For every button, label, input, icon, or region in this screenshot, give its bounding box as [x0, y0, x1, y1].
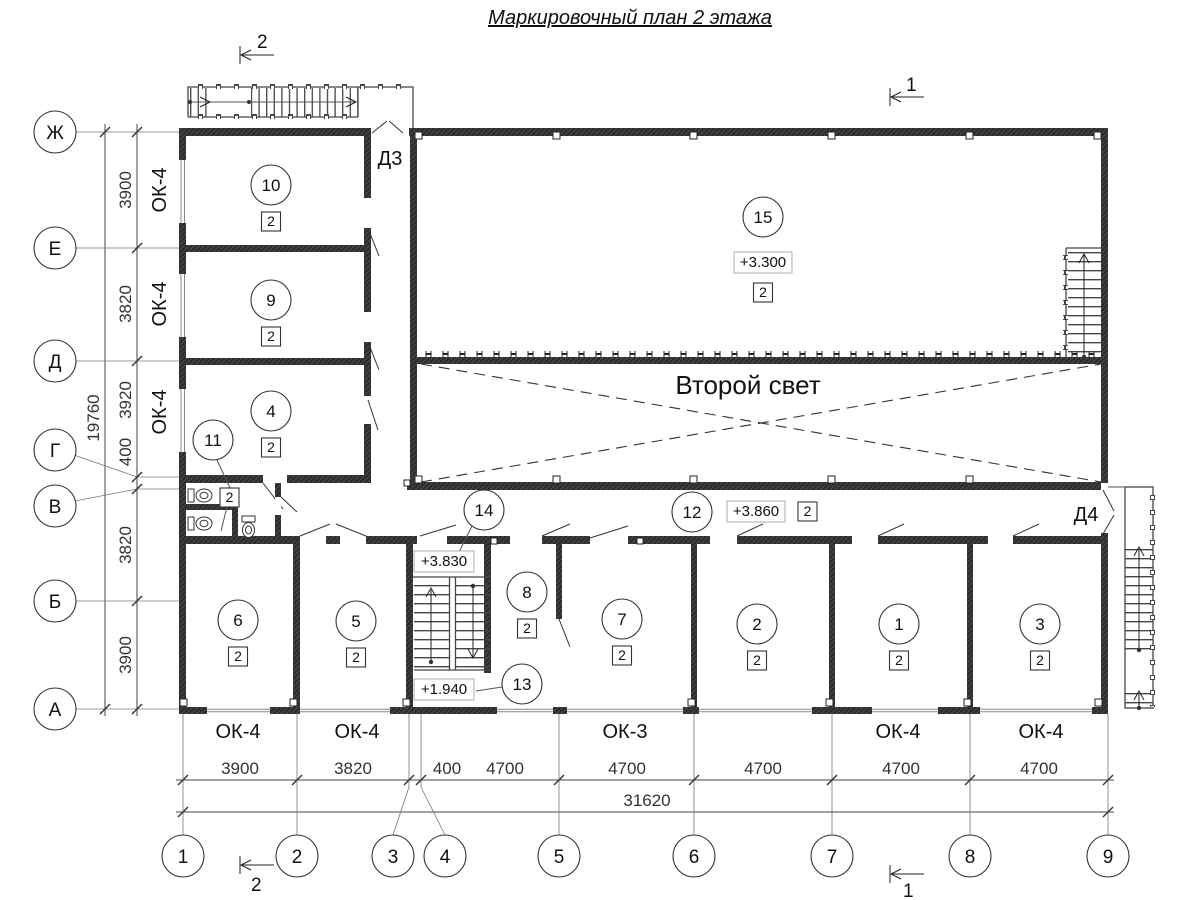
- dim-left-5: 3820: [116, 526, 135, 564]
- room-label-5: 5 2: [336, 601, 376, 667]
- page-title: Маркировочный план 2 этажа: [488, 7, 772, 29]
- window-bottom-room8: [497, 707, 553, 714]
- room-label-12: 12 +3.860 2: [672, 492, 817, 532]
- axis-b: Б: [49, 592, 61, 613]
- window-bottom-room2: [699, 707, 812, 714]
- second-light-label: Второй свет: [675, 370, 820, 400]
- drawing-page: Маркировочный план 2 этажа: [0, 0, 1200, 900]
- stair-top-external: [188, 84, 413, 128]
- window-mark-ok4-1: ОК-4: [216, 721, 261, 743]
- axis-3: 3: [388, 847, 399, 868]
- window-mark-ok4-3: ОК-4: [876, 721, 921, 743]
- svg-text:8: 8: [522, 583, 531, 602]
- toilet-icon: [188, 489, 212, 502]
- axis-5: 5: [554, 847, 565, 868]
- axis-e: Е: [49, 239, 62, 260]
- axes-bottom: 1 2 3 4 5 6 7 8 9: [162, 835, 1129, 877]
- svg-text:2: 2: [618, 647, 626, 663]
- dim-bottom-6: 4700: [744, 759, 782, 778]
- svg-text:2: 2: [226, 489, 234, 505]
- window-left-2: [179, 274, 186, 337]
- svg-text:2: 2: [804, 503, 812, 519]
- dim-bottom-3: 400: [433, 759, 461, 778]
- axis-7: 7: [827, 847, 838, 868]
- svg-text:12: 12: [683, 503, 702, 522]
- axis-6: 6: [689, 847, 700, 868]
- dim-left-4: 400: [116, 438, 135, 466]
- axis-v: В: [49, 497, 62, 518]
- window-mark-ok3: ОК-3: [603, 721, 648, 743]
- stair-elevation-upper: +3.830: [414, 551, 474, 572]
- svg-text:2: 2: [251, 875, 262, 896]
- stair-main: [413, 577, 491, 670]
- window-mark-ok4-2: ОК-4: [335, 721, 380, 743]
- svg-text:1: 1: [906, 75, 917, 96]
- section-mark-2-bottom: 2: [240, 856, 274, 896]
- section-mark-2-top: 2: [240, 32, 274, 64]
- room-label-8: 8 2: [507, 572, 547, 638]
- elevation-stair-lower: +1.940: [421, 681, 467, 698]
- window-mark-ok4-4: ОК-4: [1019, 721, 1064, 743]
- axis-zh: Ж: [46, 123, 64, 144]
- stairs: [188, 84, 1155, 710]
- svg-text:7: 7: [617, 610, 626, 629]
- toilet-icon: [242, 516, 255, 538]
- svg-text:2: 2: [267, 328, 275, 344]
- dim-bottom-7: 4700: [882, 759, 920, 778]
- svg-text:2: 2: [267, 213, 275, 229]
- svg-text:2: 2: [895, 652, 903, 668]
- elevation-hall: +3.300: [740, 254, 786, 271]
- dim-bottom-4: 4700: [486, 759, 524, 778]
- room-label-4: 4 2: [251, 391, 291, 457]
- room-label-3: 3 2: [1020, 604, 1060, 670]
- axis-1: 1: [178, 847, 189, 868]
- window-bottom-room7: [567, 707, 683, 714]
- door-mark-d4: Д4: [1074, 504, 1099, 526]
- svg-text:2: 2: [257, 32, 268, 53]
- svg-text:2: 2: [752, 615, 761, 634]
- dim-left-1: 3900: [116, 171, 135, 209]
- svg-text:1: 1: [894, 615, 903, 634]
- svg-text:2: 2: [753, 652, 761, 668]
- svg-text:2: 2: [523, 620, 531, 636]
- stair-right-external: [1108, 487, 1155, 710]
- section-mark-1-top: 1: [890, 75, 924, 106]
- window-mark-left-3: ОК-4: [149, 390, 171, 435]
- svg-text:2: 2: [352, 649, 360, 665]
- svg-text:9: 9: [266, 291, 275, 310]
- toilet-icon: [188, 517, 212, 530]
- axis-8: 8: [965, 847, 976, 868]
- axis-d: Д: [49, 352, 62, 373]
- axis-a: А: [49, 700, 62, 721]
- door-mark-d3: Д3: [378, 148, 403, 170]
- stair-hall-internal: [1063, 248, 1101, 360]
- svg-text:3: 3: [1035, 615, 1044, 634]
- axis-9: 9: [1103, 847, 1114, 868]
- room-label-7: 7 2: [602, 599, 642, 665]
- svg-text:5: 5: [351, 612, 360, 631]
- window-bottom-room5: [300, 707, 390, 714]
- svg-text:2: 2: [267, 439, 275, 455]
- dim-left-total: 19760: [84, 394, 103, 441]
- svg-text:14: 14: [475, 501, 494, 520]
- dim-left-2: 3820: [116, 285, 135, 323]
- dim-bottom-total: 31620: [623, 791, 670, 810]
- svg-text:4: 4: [266, 402, 275, 421]
- section-mark-1-bottom: 1: [890, 865, 924, 900]
- window-bottom-room1: [872, 707, 938, 714]
- room-label-1: 1 2: [879, 604, 919, 670]
- svg-text:2: 2: [1036, 652, 1044, 668]
- svg-text:6: 6: [233, 611, 242, 630]
- dim-bottom-5: 4700: [608, 759, 646, 778]
- svg-text:2: 2: [759, 284, 767, 300]
- svg-text:1: 1: [903, 881, 914, 900]
- walls: [179, 128, 1108, 714]
- room-label-2: 2 2: [737, 604, 777, 670]
- svg-text:13: 13: [513, 675, 532, 694]
- stair-elevation-lower: +1.940: [414, 679, 474, 700]
- dim-left-3: 3920: [116, 381, 135, 419]
- dim-left-6: 3900: [116, 636, 135, 674]
- second-light-void: Второй свет: [421, 364, 1101, 482]
- window-left-1: [179, 160, 186, 223]
- svg-text:2: 2: [234, 648, 242, 664]
- axis-4: 4: [440, 847, 451, 868]
- floor-plan-drawing: Маркировочный план 2 этажа: [0, 0, 1200, 900]
- svg-text:11: 11: [204, 431, 222, 450]
- room-label-10: 10 2: [251, 165, 291, 231]
- svg-text:10: 10: [262, 176, 281, 195]
- dim-bottom-2: 3820: [334, 759, 372, 778]
- window-left-3: [179, 389, 186, 452]
- elevation-stair-upper: +3.830: [421, 553, 467, 570]
- axis-g: Г: [50, 441, 60, 462]
- window-bottom-room3: [980, 707, 1092, 714]
- room-label-6: 6 2: [218, 600, 258, 666]
- dim-bottom-8: 4700: [1020, 759, 1058, 778]
- window-bottom-room6: [207, 707, 270, 714]
- window-mark-left-1: ОК-4: [149, 168, 171, 213]
- elevation-corridor: +3.860: [733, 503, 779, 520]
- svg-text:15: 15: [754, 208, 773, 227]
- dim-bottom-1: 3900: [221, 759, 259, 778]
- window-mark-left-2: ОК-4: [149, 282, 171, 327]
- axis-2: 2: [292, 847, 303, 868]
- room-label-15: 15 +3.300 2: [734, 197, 792, 302]
- room-label-9: 9 2: [251, 280, 291, 346]
- parapet-balusters: [420, 351, 1098, 357]
- axes-left: Ж Е Д Г В Б А: [34, 111, 76, 730]
